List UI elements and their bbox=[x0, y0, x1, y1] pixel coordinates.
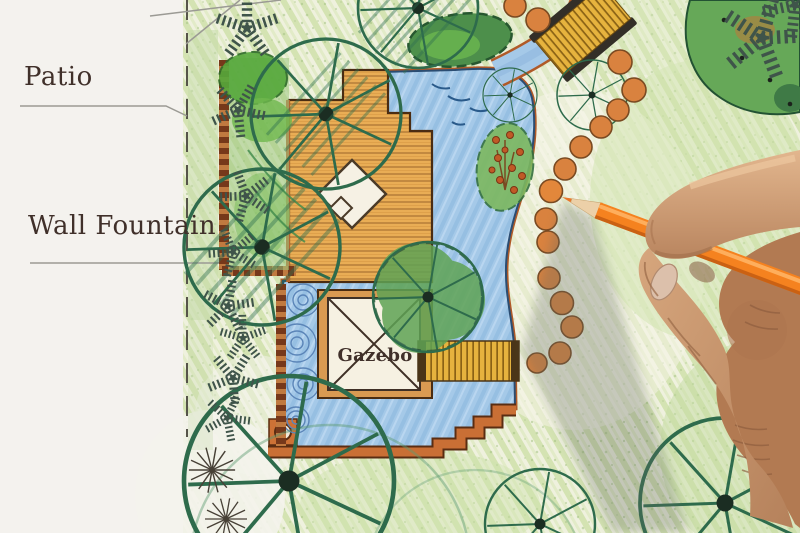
plan-drawing bbox=[0, 0, 800, 533]
gazebo-label: Gazebo bbox=[330, 345, 420, 366]
stone-pointed-at bbox=[540, 180, 563, 203]
wall-fountain-label: Wall Fountain bbox=[28, 211, 216, 241]
patio-label: Patio bbox=[24, 62, 93, 92]
landscape-plan-photo: Patio Wall Fountain Gazebo bbox=[0, 0, 800, 533]
